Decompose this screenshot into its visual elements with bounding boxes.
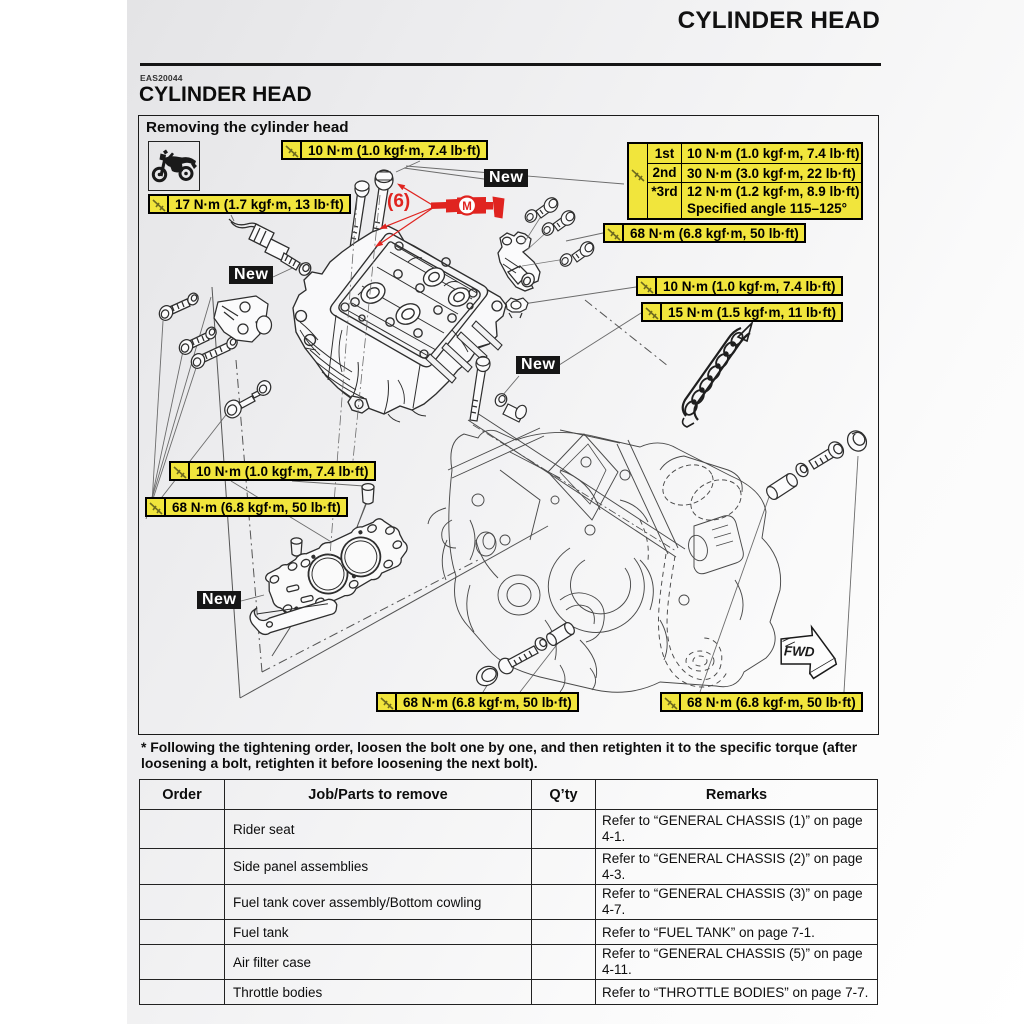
- svg-text:M: M: [462, 201, 472, 213]
- svg-text:FWD: FWD: [784, 643, 815, 659]
